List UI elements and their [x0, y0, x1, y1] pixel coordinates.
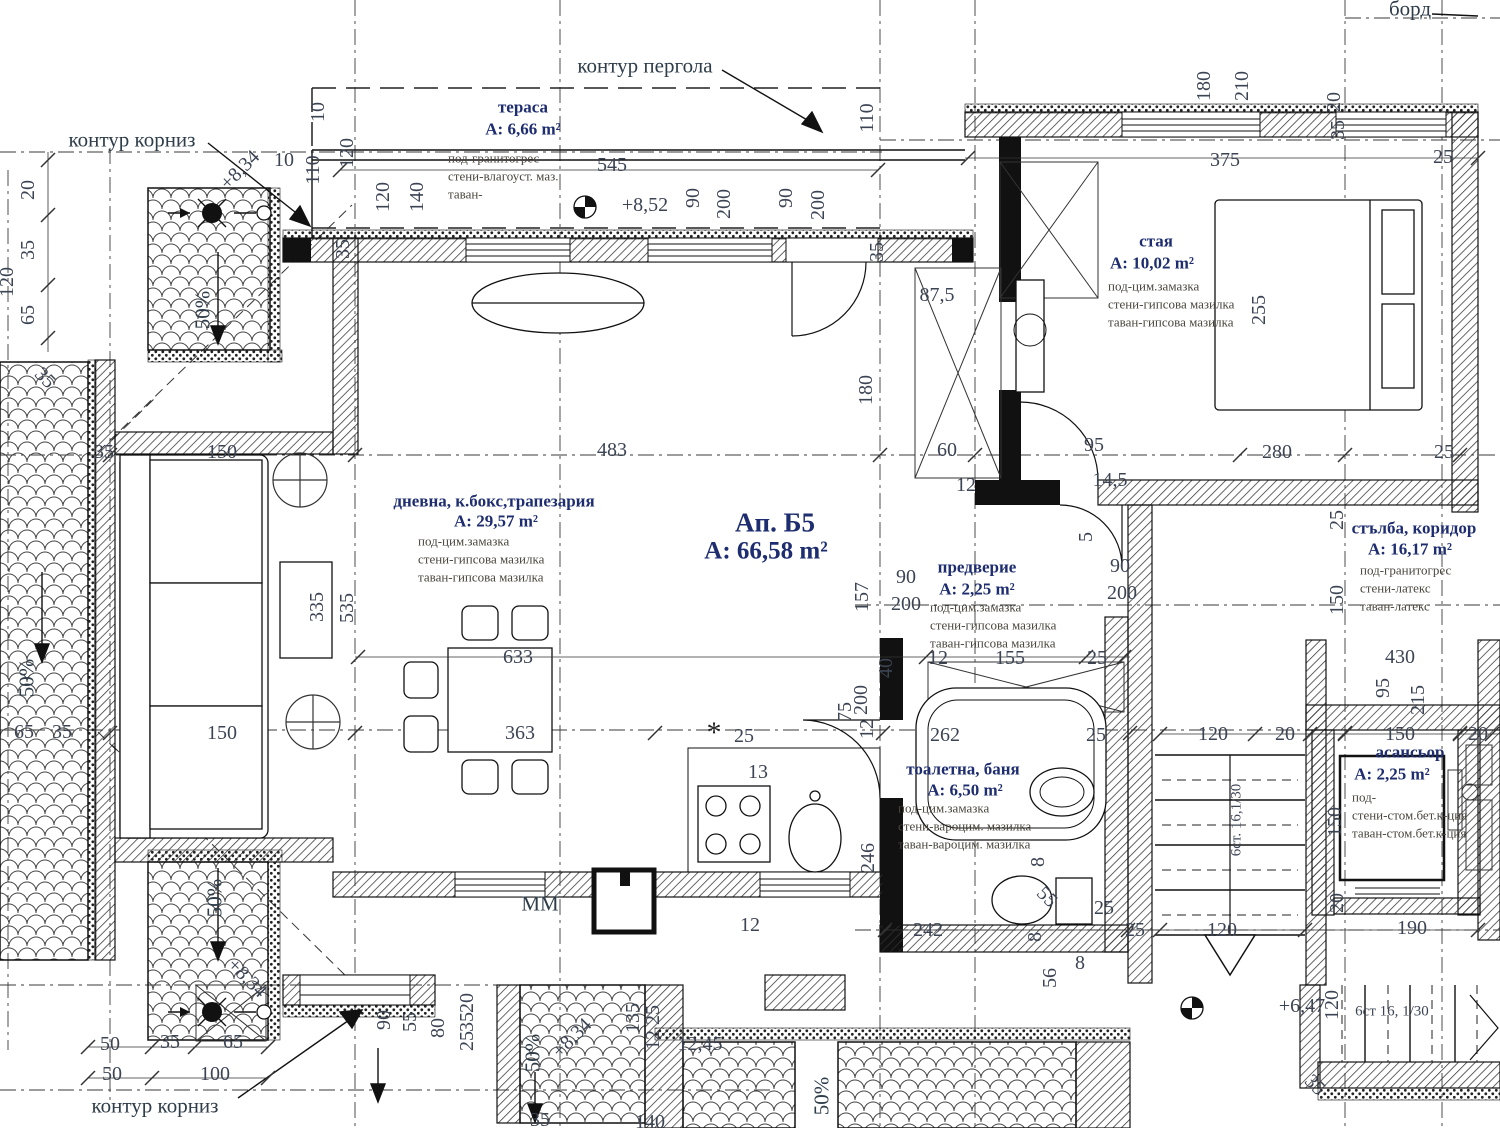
dimension-label: 150: [207, 723, 237, 743]
dimension-label: 200: [851, 685, 871, 715]
room-name: асансьор: [1375, 744, 1444, 761]
room-finish: стени-стом.бет.к-ция: [1352, 809, 1467, 822]
annotation: 50%: [193, 291, 214, 330]
dimension-label: 10: [274, 150, 294, 170]
dimension-label: 375: [1210, 150, 1240, 170]
room-name: дневна, к.бокс,трапезария: [393, 493, 594, 510]
annotation: контур корниз: [92, 1096, 219, 1117]
dimension-label: 35: [1328, 120, 1348, 140]
dimension-label: 35: [530, 1110, 550, 1128]
dimension-label: 25: [1434, 442, 1454, 462]
room-area: A: 6,66 m²: [485, 121, 560, 138]
dimension-label: 200: [808, 190, 828, 220]
labels-layer: Ап. Б5 A: 66,58 m² терасаA: 6,66 m²под-г…: [0, 0, 1500, 1128]
room-name: стая: [1139, 233, 1173, 250]
dimension-label: 25: [1087, 648, 1107, 668]
room-finish: таван-гипсова мазилка: [418, 571, 544, 584]
dimension-label: 155: [995, 648, 1025, 668]
room-finish: под-цим.замазка: [1108, 280, 1199, 293]
room-finish: таван-стом.бет.к-ция: [1352, 827, 1466, 840]
annotation: 6ст 16, 1/30: [1355, 1005, 1429, 1020]
dimension-label: 20: [457, 993, 477, 1013]
dimension-label: 215: [1408, 685, 1428, 715]
dimension-label: 150: [1385, 724, 1415, 744]
dimension-label: 200: [1107, 583, 1137, 603]
room-area: A: 2,25 m²: [939, 581, 1014, 598]
dimension-label: 200: [714, 189, 734, 219]
dimension-label: 50: [102, 1064, 122, 1084]
dimension-label: 25: [1327, 510, 1347, 530]
dimension-label: 25: [457, 1031, 477, 1051]
room-name: тераса: [498, 99, 548, 116]
dimension-label: 120: [1322, 990, 1342, 1020]
apartment-area: A: 66,58 m²: [704, 539, 827, 564]
dimension-label: 25: [734, 726, 754, 746]
dimension-label: 150: [1325, 807, 1345, 837]
dimension-label: 150: [1327, 585, 1347, 615]
annotation: +8,52: [622, 195, 668, 215]
dimension-label: 120: [1198, 724, 1228, 744]
annotation: +6,47: [1279, 996, 1325, 1016]
dimension-label: 120: [1207, 920, 1237, 940]
dimension-label: 56: [1040, 968, 1060, 988]
dimension-label: 110: [303, 155, 323, 184]
dimension-label: 335: [307, 592, 327, 622]
room-finish: таван-латекс: [1360, 600, 1430, 613]
dimension-label: 65: [14, 722, 34, 742]
dimension-label: 35: [160, 1032, 180, 1052]
dimension-label: 262: [930, 725, 960, 745]
dimension-label: 12: [740, 915, 760, 935]
dimension-label: 20: [1324, 92, 1344, 112]
room-finish: под-цим.замазка: [930, 601, 1021, 614]
dimension-label: 8: [1075, 953, 1085, 973]
dimension-label: 35: [457, 1012, 477, 1032]
dimension-label: 190: [1397, 918, 1427, 938]
room-finish: таван-вароцим. мазилка: [898, 838, 1030, 851]
dimension-label: 40: [876, 658, 896, 678]
room-area: A: 6,50 m²: [927, 782, 1002, 799]
dimension-label: 255: [1249, 295, 1269, 325]
dimension-label: 280: [1262, 442, 1292, 462]
dimension-label: 35: [94, 442, 114, 462]
dimension-label: 50: [100, 1034, 120, 1054]
dimension-label: 8: [1028, 857, 1048, 867]
dimension-label: 483: [597, 440, 627, 460]
room-finish: стени-гипсова мазилка: [930, 619, 1056, 632]
room-finish: таван-гипсова мазилка: [1108, 316, 1234, 329]
room-finish: под-гранитогрес: [448, 152, 539, 165]
dimension-label: 200: [891, 594, 921, 614]
dimension-label: 633: [503, 647, 533, 667]
dimension-label: 35: [18, 240, 38, 260]
dimension-label: 110: [857, 103, 877, 132]
dimension-label: 140: [407, 182, 427, 212]
dimension-label: 25: [1125, 920, 1145, 940]
dimension-label: 20: [1468, 724, 1488, 744]
dimension-label: 242: [913, 920, 943, 940]
dimension-label: 95: [1373, 678, 1393, 698]
dimension-label: 135: [623, 1003, 643, 1033]
dimension-label: 180: [1194, 71, 1214, 101]
dimension-label: 8: [1025, 932, 1045, 942]
dimension-label: 180: [856, 375, 876, 405]
dimension-label: 20: [18, 180, 38, 200]
dimension-label: 35: [867, 242, 887, 262]
dimension-label: 90: [776, 188, 796, 208]
dimension-label: 55: [1033, 883, 1061, 911]
dimension-label: 12: [643, 1030, 663, 1050]
dimension-label: 12: [928, 648, 948, 668]
dimension-label: 87,5: [920, 285, 955, 305]
room-finish: стени-латекс: [1360, 582, 1431, 595]
annotation: *: [707, 718, 722, 748]
room-name: стълба, коридор: [1352, 520, 1477, 537]
dimension-label: 20: [1275, 724, 1295, 744]
room-finish: стени-влагоуст. маз.: [448, 170, 558, 183]
room-finish: таван-гипсова мазилка: [930, 637, 1056, 650]
dimension-label: 210: [1232, 71, 1252, 101]
dimension-label: 5: [1076, 532, 1096, 542]
dimension-label: 12,45: [678, 1034, 723, 1054]
dimension-label: 120: [337, 138, 357, 168]
room-area: A: 29,57 m²: [454, 513, 538, 530]
room-finish: под-цим.замазка: [898, 802, 989, 815]
room-finish: под-: [1352, 791, 1376, 804]
dimension-label: 25: [1086, 725, 1106, 745]
dimension-label: 10: [308, 102, 328, 122]
dimension-label: 90: [374, 1010, 394, 1030]
dimension-label: 100: [200, 1064, 230, 1084]
annotation: 50%: [205, 879, 226, 918]
annotation: контур пергола: [577, 56, 712, 77]
annotation: 50%: [523, 1034, 544, 1073]
dimension-label: 20: [1327, 893, 1347, 913]
room-finish: стени-гипсова мазилка: [1108, 298, 1234, 311]
dimension-label: 13: [748, 762, 768, 782]
dimension-label: 25: [1433, 147, 1453, 167]
dimension-label: 90: [896, 567, 916, 587]
dimension-label: 25: [1094, 898, 1114, 918]
dimension-label: 35: [333, 239, 353, 259]
dimension-label: 25: [643, 1005, 663, 1025]
room-area: A: 2,25 m²: [1354, 766, 1429, 783]
room-area: A: 10,02 m²: [1110, 255, 1194, 272]
annotation: борд: [1389, 0, 1431, 20]
dimension-label: 55: [400, 1012, 420, 1032]
dimension-label: 65: [18, 305, 38, 325]
annotation: +8,34: [217, 147, 264, 194]
dimension-label: 80: [428, 1018, 448, 1038]
annotation: +8,34: [549, 1015, 596, 1062]
dimension-label: 430: [1385, 647, 1415, 667]
dimension-label: 14,5: [1093, 470, 1128, 490]
room-name: тоалетна, баня: [906, 761, 1020, 778]
annotation: 6ст. 16,1/30: [1230, 784, 1245, 857]
dimension-label: 35: [1301, 1071, 1329, 1099]
dimension-label: 545: [597, 155, 627, 175]
dimension-label: 120: [0, 267, 17, 297]
annotation: MM: [521, 894, 558, 915]
dimension-label: 90: [683, 188, 703, 208]
floor-plan-sheet: Ап. Б5 A: 66,58 m² терасаA: 6,66 m²под-г…: [0, 0, 1500, 1128]
dimension-label: 120: [373, 182, 393, 212]
dimension-label: 535: [337, 593, 357, 623]
room-finish: таван-: [448, 188, 483, 201]
apartment-number: Ап. Б5: [735, 510, 815, 537]
dimension-label: 95: [1084, 435, 1104, 455]
dimension-label: 12: [857, 719, 877, 739]
room-finish: под-гранитогрес: [1360, 564, 1451, 577]
dimension-label: 150: [207, 442, 237, 462]
dimension-label: 35: [52, 722, 72, 742]
dimension-label: 12: [956, 475, 976, 495]
annotation: 50%: [17, 659, 38, 698]
room-finish: стени-гипсова мазилка: [418, 553, 544, 566]
annotation: +8,34: [224, 955, 271, 1002]
dimension-label: 363: [505, 723, 535, 743]
dimension-label: 35: [31, 364, 59, 392]
dimension-label: 140: [635, 1112, 665, 1128]
annotation: контур корниз: [69, 130, 196, 151]
annotation: 50%: [812, 1077, 833, 1116]
dimension-label: 90: [1110, 556, 1130, 576]
dimension-label: 65: [223, 1032, 243, 1052]
dimension-label: 60: [937, 440, 957, 460]
room-finish: под-цим.замазка: [418, 535, 509, 548]
room-area: A: 16,17 m²: [1368, 541, 1452, 558]
room-finish: стени-вароцим. мазилка: [898, 820, 1031, 833]
dimension-label: 157: [852, 582, 872, 612]
dimension-label: 246: [858, 843, 878, 873]
room-name: предверие: [938, 559, 1017, 576]
